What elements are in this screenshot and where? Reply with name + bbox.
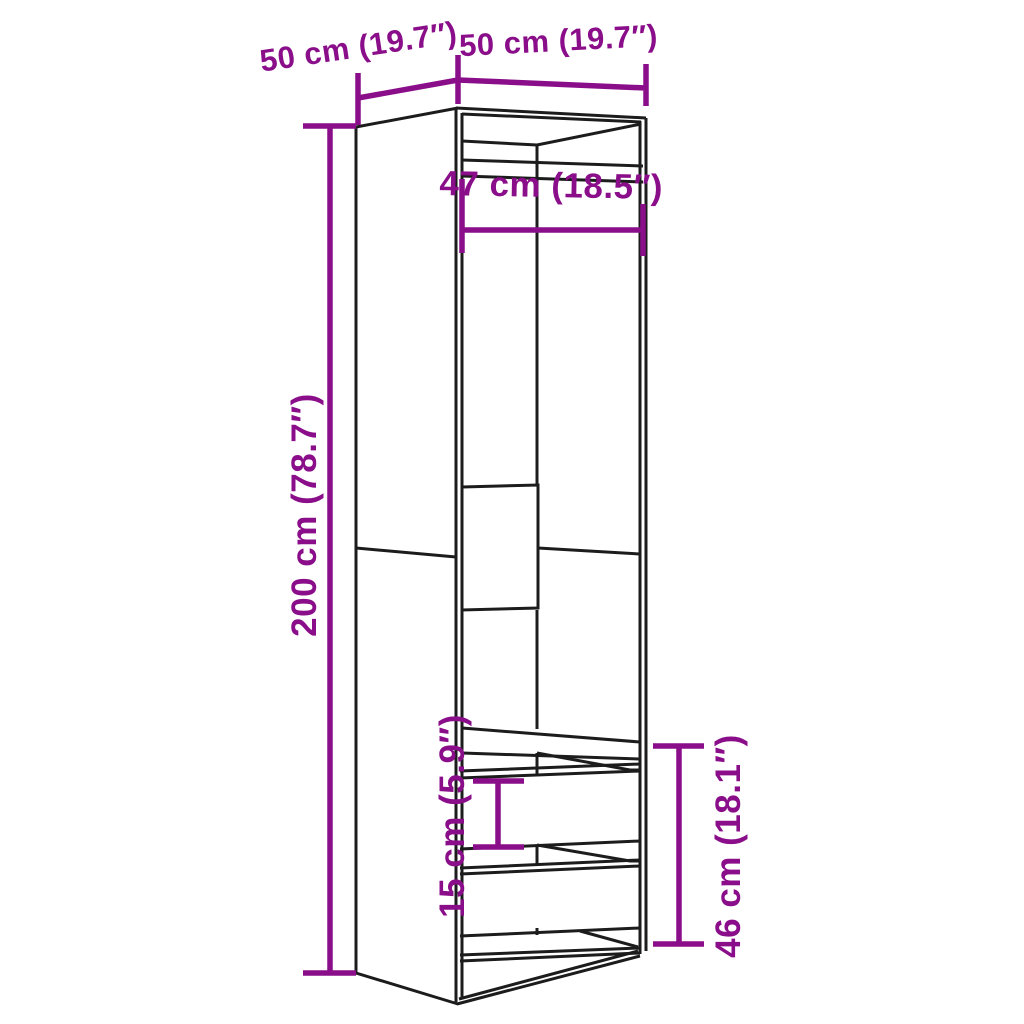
drawer-2-front-bottom (460, 928, 640, 936)
dimension-depth-line (358, 55, 458, 125)
dimension-lower-section-height-label: 46 cm (18.1″) (709, 734, 748, 958)
wardrobe-dimension-diagram: 50 cm (19.7″) 50 cm (19.7″) 47 cm (18.5″… (0, 0, 1024, 1024)
dimension-drawer-height-label: 15 cm (5.9″) (433, 714, 472, 918)
dimension-depth-label: 50 cm (19.7″) (258, 15, 460, 79)
dimension-drawer-height-line (473, 781, 524, 847)
dimension-depth: 50 cm (19.7″) (258, 15, 460, 125)
dimension-drawer-height: 15 cm (5.9″) (433, 714, 524, 918)
top-underside-edges (462, 124, 641, 145)
dimension-height: 200 cm (78.7″) (285, 126, 356, 973)
diagram-canvas: 50 cm (19.7″) 50 cm (19.7″) 47 cm (18.5″… (0, 0, 1024, 1024)
dimension-interior-width: 47 cm (18.5″) (439, 164, 663, 256)
dimension-lower-section-height: 46 cm (18.1″) (653, 734, 748, 958)
drawer-2-front-top (460, 860, 640, 874)
drawer-1-front-top (460, 764, 640, 778)
dimension-width: 50 cm (19.7″) (458, 18, 659, 106)
top-front-edge (456, 108, 646, 122)
dimension-interior-width-label: 47 cm (18.5″) (439, 164, 663, 207)
bottom-panel-diagonal (580, 931, 638, 947)
dimension-width-line (458, 64, 646, 106)
dimension-lower-section-height-line (653, 746, 704, 944)
center-support-panel (462, 485, 538, 610)
drawer-2-side-diagonal (537, 845, 640, 861)
wardrobe-line-drawing (356, 108, 646, 1004)
dimension-height-label: 200 cm (78.7″) (285, 393, 324, 637)
dimension-width-label: 50 cm (19.7″) (458, 18, 658, 63)
